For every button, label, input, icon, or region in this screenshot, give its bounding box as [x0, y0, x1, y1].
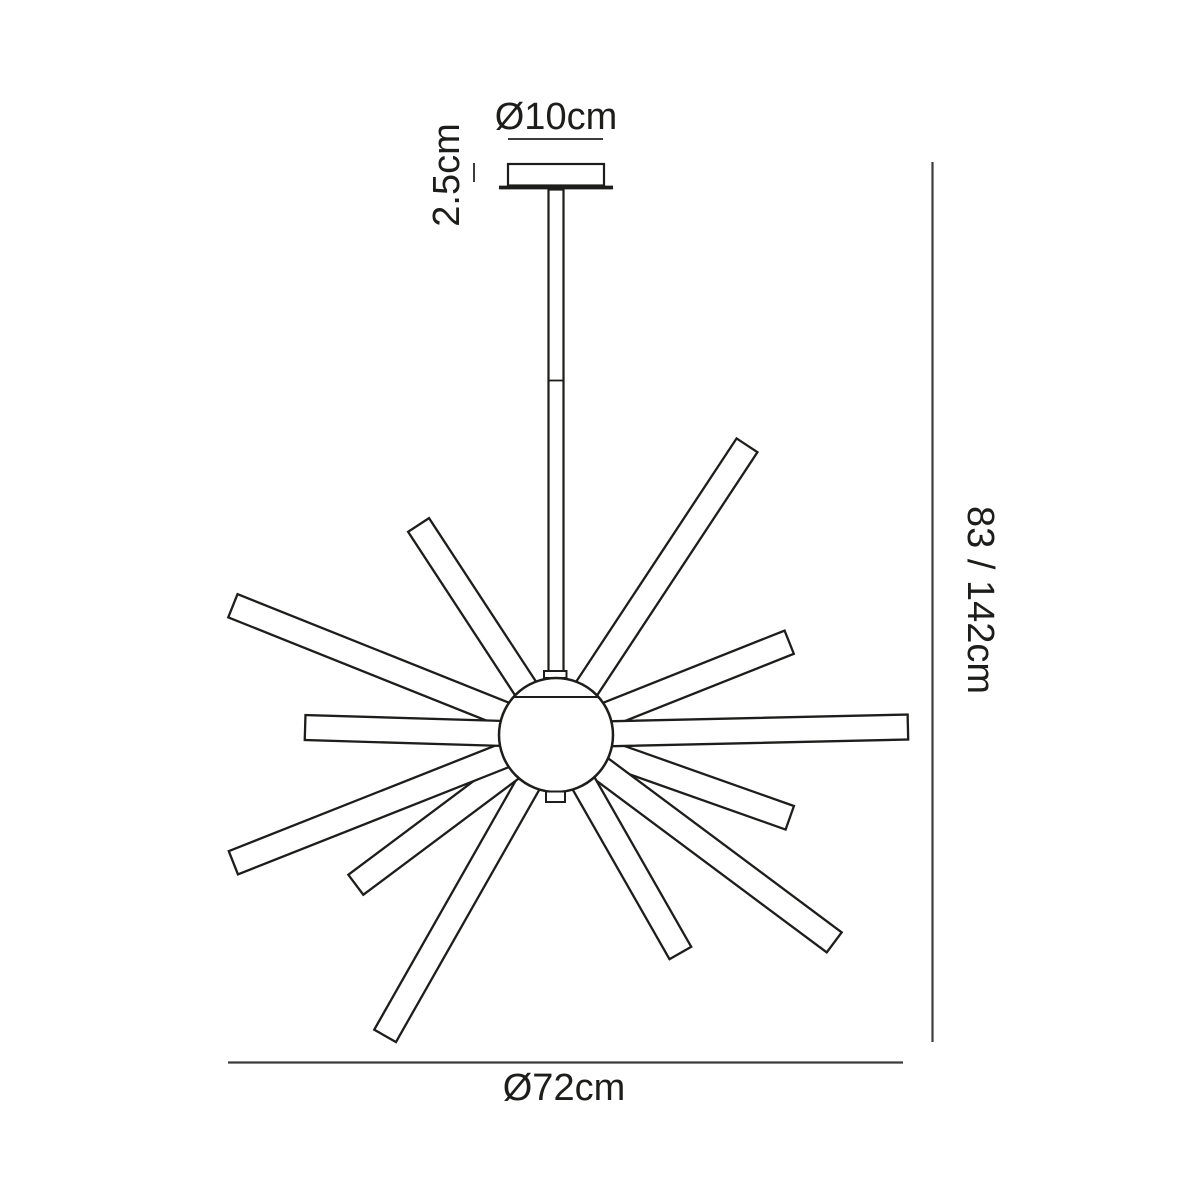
fixture-diameter-label: Ø72cm	[503, 1067, 625, 1109]
arm-left-horizontal	[305, 715, 529, 747]
central-sphere	[499, 678, 613, 792]
canopy-height-label: 2.5cm	[426, 123, 468, 226]
ceiling-canopy	[508, 164, 604, 186]
suspension-rod	[549, 190, 564, 673]
dimension-drawing-page: Ø10cm 2.5cm 83 / 142cm Ø72cm	[0, 0, 1200, 1200]
chandelier-dimension-diagram: Ø10cm 2.5cm 83 / 142cm Ø72cm	[0, 0, 1200, 1200]
overall-height-label: 83 / 142cm	[959, 506, 1001, 694]
arm-right-horizontal	[584, 715, 908, 747]
canopy-diameter-label: Ø10cm	[495, 96, 617, 138]
sphere-bottom-finial	[546, 792, 565, 803]
